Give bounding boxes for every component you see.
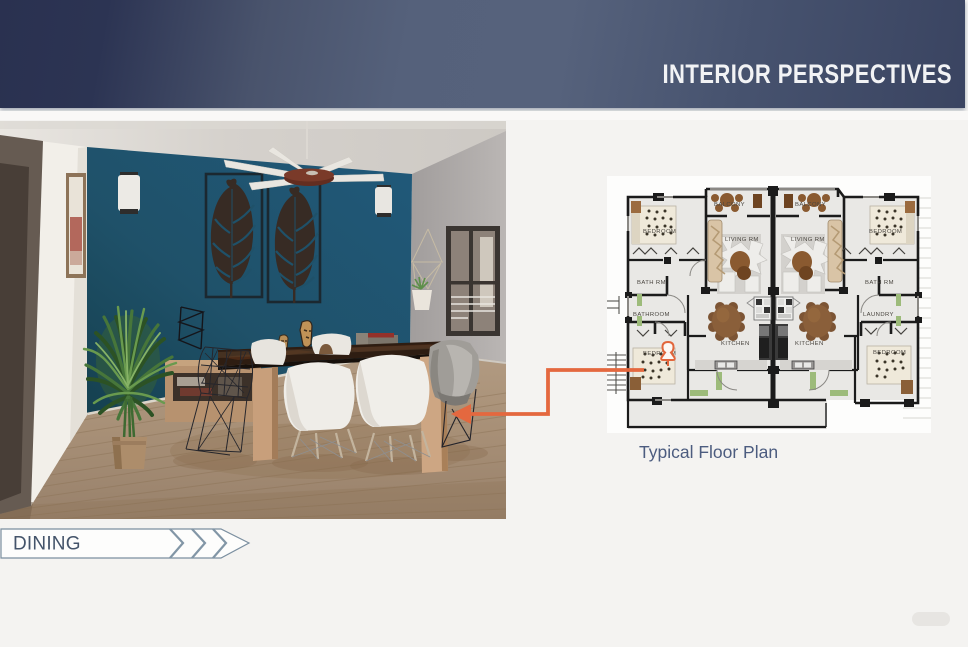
svg-text:LIVING RM: LIVING RM bbox=[725, 237, 759, 243]
svg-text:KITCHEN: KITCHEN bbox=[795, 341, 824, 347]
svg-text:BATH RM: BATH RM bbox=[637, 280, 666, 286]
svg-text:LIVING RM: LIVING RM bbox=[791, 237, 825, 243]
svg-text:DINING: DINING bbox=[13, 534, 81, 555]
svg-text:BEDROOM: BEDROOM bbox=[869, 229, 902, 235]
svg-text:BATHROOM: BATHROOM bbox=[633, 312, 670, 318]
svg-text:BEDROOM: BEDROOM bbox=[873, 350, 906, 356]
svg-text:BALCONY: BALCONY bbox=[714, 202, 745, 208]
svg-text:BEDROOM: BEDROOM bbox=[643, 229, 676, 235]
svg-text:BALCONY: BALCONY bbox=[795, 202, 826, 208]
svg-text:LAUNDRY: LAUNDRY bbox=[863, 312, 894, 318]
svg-text:KITCHEN: KITCHEN bbox=[721, 341, 750, 347]
svg-text:BATH RM: BATH RM bbox=[865, 280, 894, 286]
